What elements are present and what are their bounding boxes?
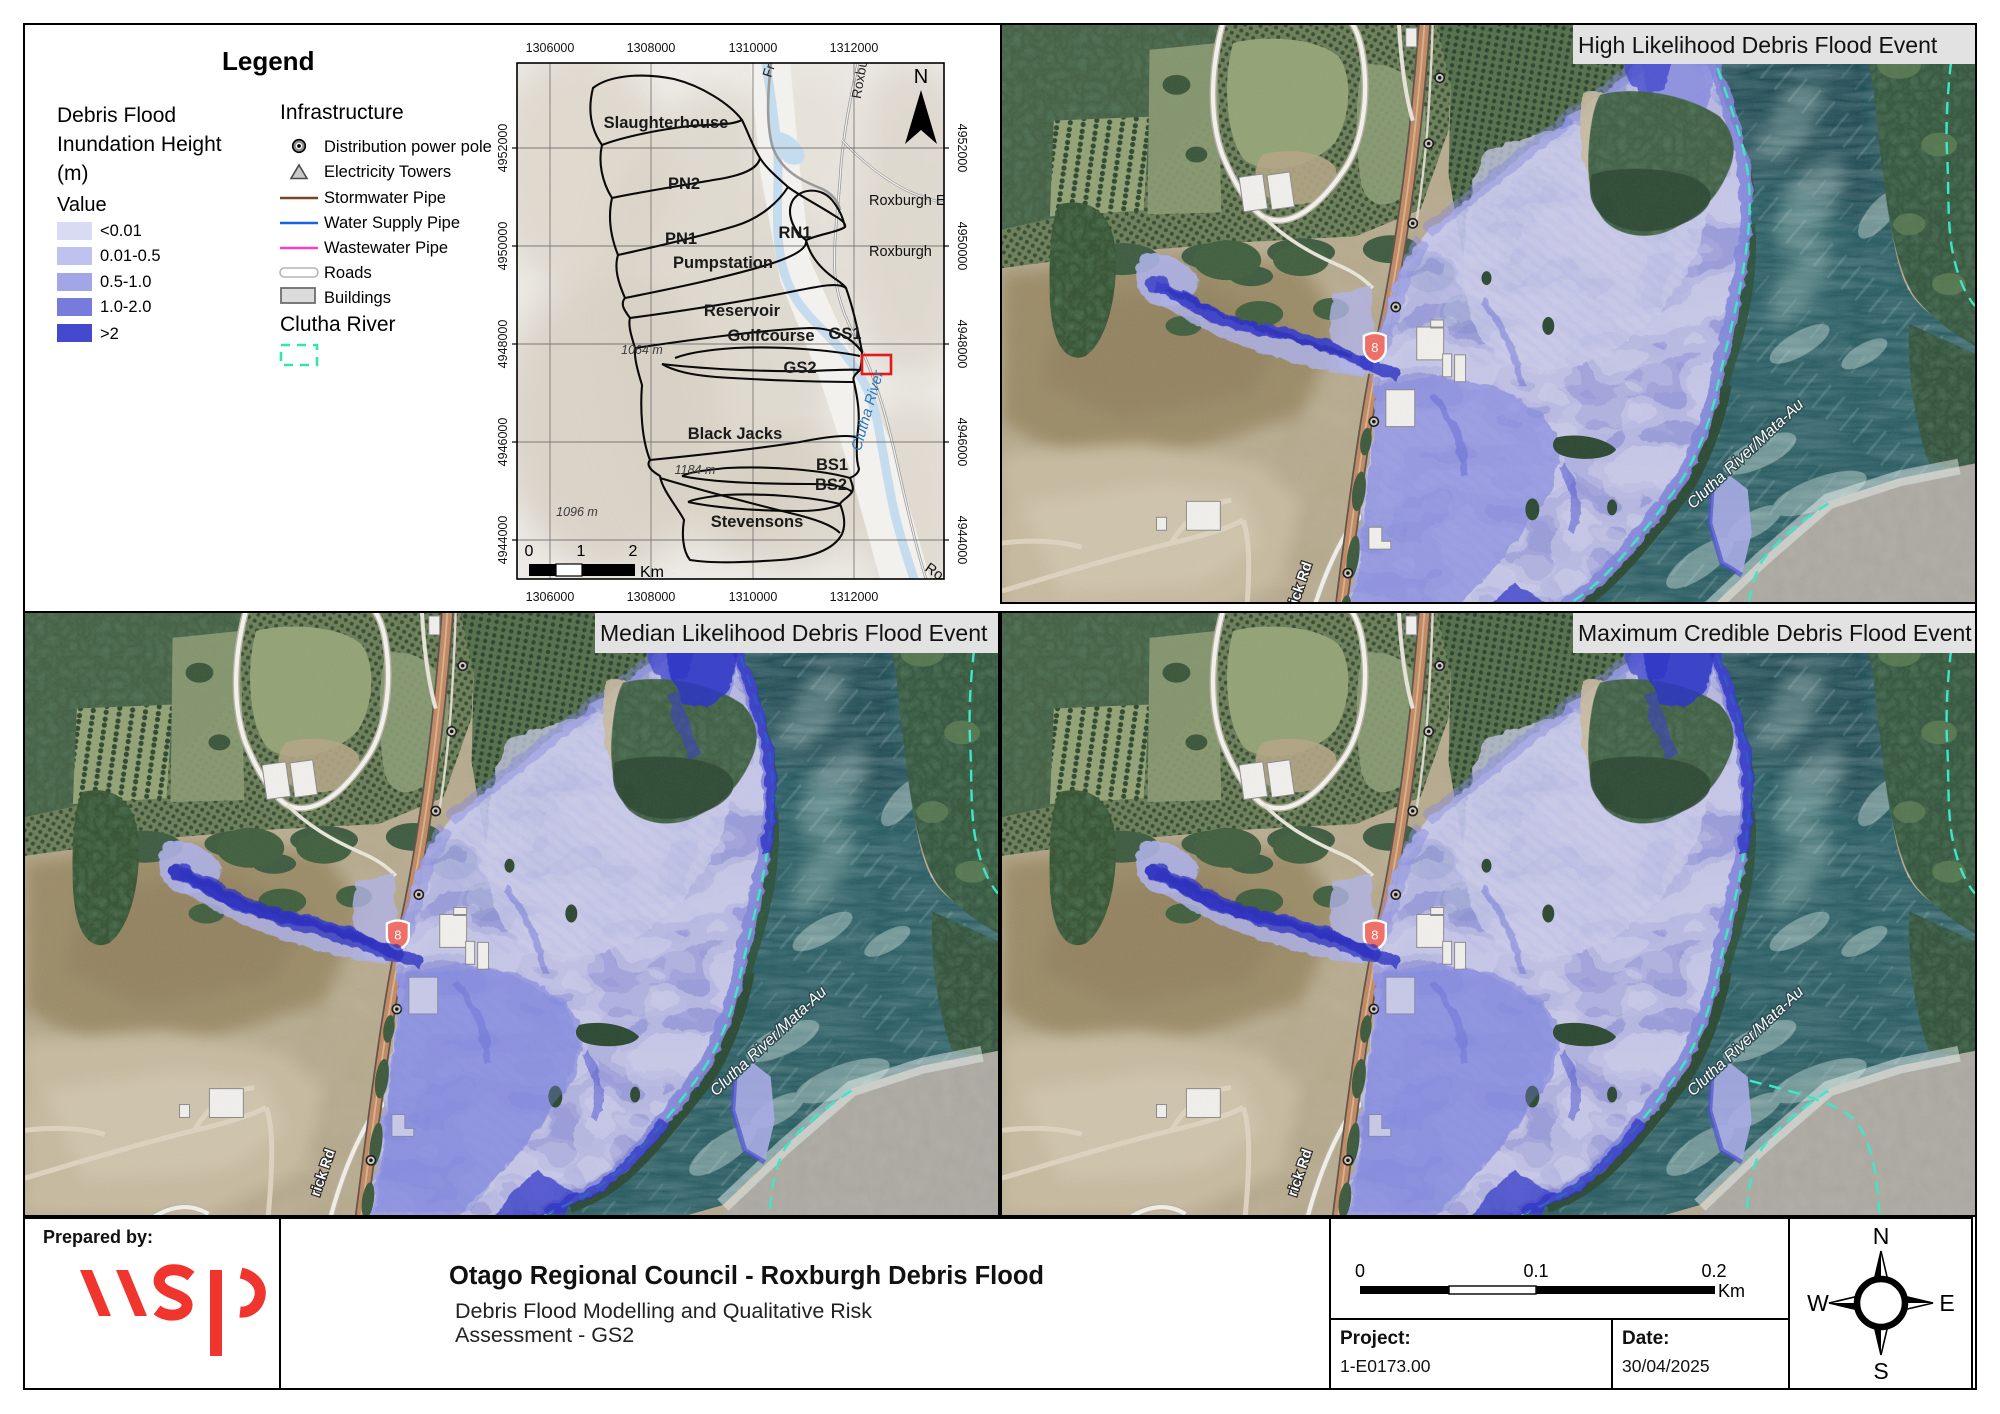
svg-text:4948000: 4948000 bbox=[955, 320, 969, 369]
svg-text:Reservoir: Reservoir bbox=[704, 302, 781, 320]
svg-text:4950000: 4950000 bbox=[955, 222, 969, 271]
svg-text:4944000: 4944000 bbox=[955, 516, 969, 565]
svg-text:PN2: PN2 bbox=[668, 175, 700, 193]
svg-text:4950000: 4950000 bbox=[496, 222, 510, 271]
svg-text:N: N bbox=[1873, 1223, 1890, 1249]
svg-text:4952000: 4952000 bbox=[955, 124, 969, 173]
svg-text:Black Jacks: Black Jacks bbox=[688, 425, 783, 443]
svg-text:1: 1 bbox=[577, 543, 586, 560]
svg-text:S: S bbox=[1873, 1358, 1888, 1384]
svg-text:GS2: GS2 bbox=[783, 359, 816, 377]
svg-text:1306000: 1306000 bbox=[526, 590, 575, 604]
svg-text:1096 m: 1096 m bbox=[556, 505, 598, 519]
svg-text:4948000: 4948000 bbox=[496, 320, 510, 369]
svg-text:BS1: BS1 bbox=[816, 456, 848, 474]
svg-text:RN1: RN1 bbox=[778, 224, 811, 242]
svg-text:4944000: 4944000 bbox=[496, 516, 510, 565]
svg-text:Roxburgh E: Roxburgh E bbox=[869, 193, 946, 209]
svg-text:1310000: 1310000 bbox=[729, 590, 778, 604]
svg-text:2: 2 bbox=[629, 543, 638, 560]
svg-text:0.2: 0.2 bbox=[1701, 1261, 1726, 1281]
svg-text:Km: Km bbox=[1718, 1281, 1745, 1301]
svg-text:PN1: PN1 bbox=[665, 230, 697, 248]
svg-text:0.1: 0.1 bbox=[1523, 1261, 1548, 1281]
svg-text:Pumpstation: Pumpstation bbox=[673, 254, 773, 272]
svg-text:Stevensons: Stevensons bbox=[711, 513, 804, 531]
svg-text:N: N bbox=[914, 66, 928, 88]
svg-text:E: E bbox=[1939, 1290, 1954, 1316]
svg-text:0: 0 bbox=[525, 543, 534, 560]
svg-text:1306000: 1306000 bbox=[526, 41, 575, 55]
svg-text:4946000: 4946000 bbox=[955, 418, 969, 467]
svg-text:1064 m: 1064 m bbox=[621, 343, 663, 357]
svg-text:GS1: GS1 bbox=[828, 325, 861, 343]
svg-text:4952000: 4952000 bbox=[496, 124, 510, 173]
svg-text:Slaughterhouse: Slaughterhouse bbox=[604, 114, 729, 132]
svg-text:Golfcourse: Golfcourse bbox=[727, 327, 814, 345]
svg-text:1312000: 1312000 bbox=[830, 41, 879, 55]
svg-text:Roxburgh: Roxburgh bbox=[869, 244, 932, 260]
svg-text:4946000: 4946000 bbox=[496, 418, 510, 467]
svg-text:1184 m: 1184 m bbox=[675, 463, 716, 477]
svg-text:0: 0 bbox=[1355, 1261, 1365, 1281]
svg-text:1312000: 1312000 bbox=[830, 590, 879, 604]
svg-text:BS2: BS2 bbox=[815, 476, 847, 494]
svg-text:W: W bbox=[1807, 1290, 1829, 1316]
svg-text:1308000: 1308000 bbox=[627, 41, 676, 55]
svg-text:1310000: 1310000 bbox=[729, 41, 778, 55]
svg-text:1308000: 1308000 bbox=[627, 590, 676, 604]
